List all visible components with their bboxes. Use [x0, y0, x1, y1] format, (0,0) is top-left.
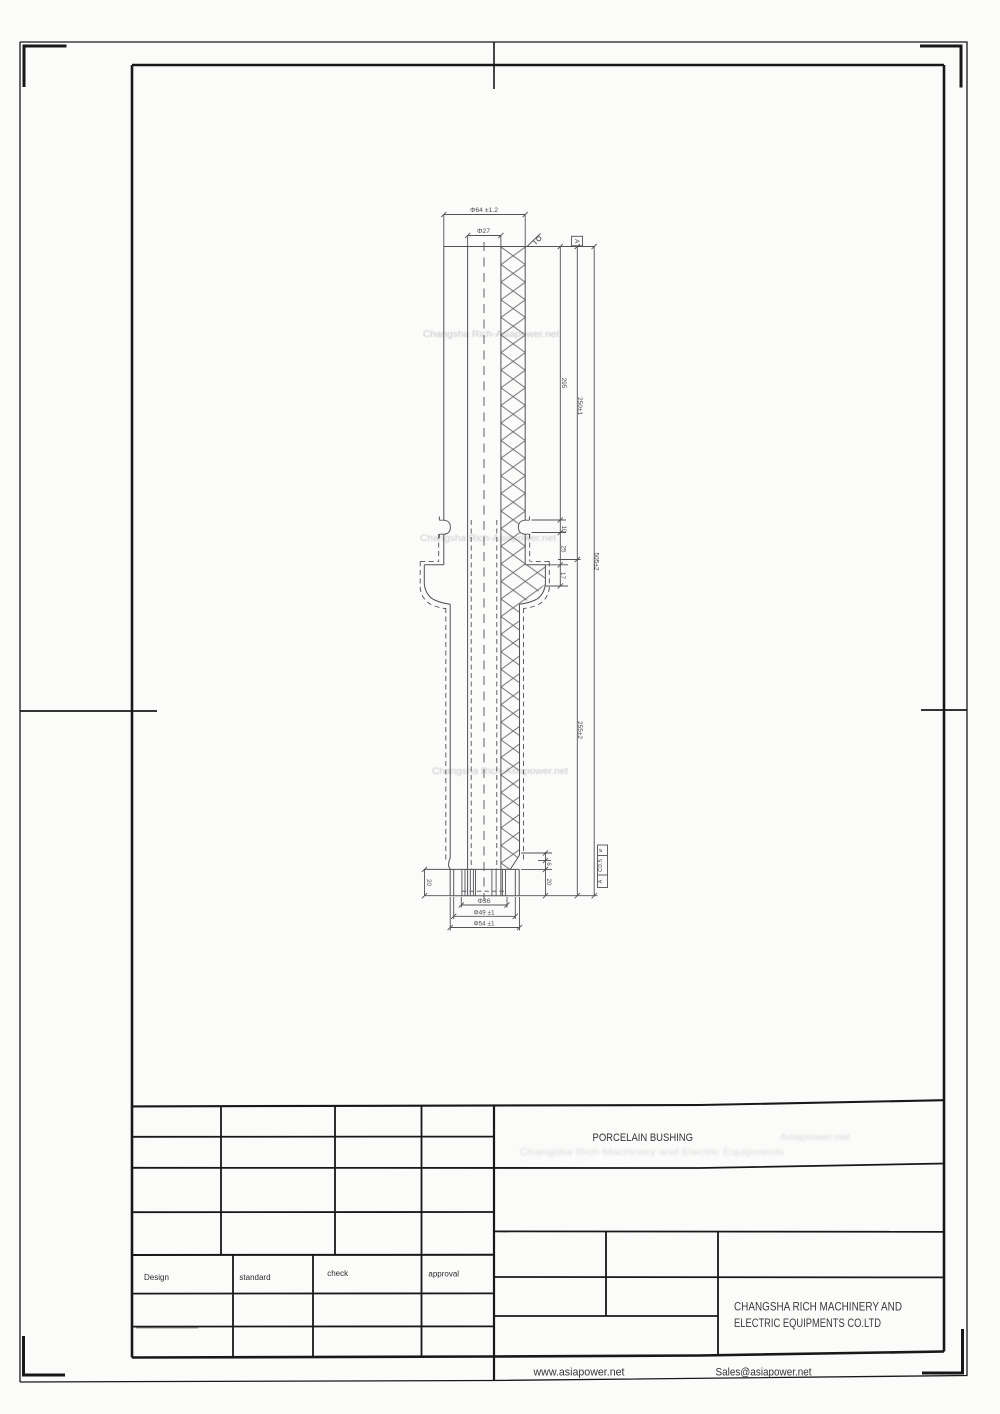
- svg-text:⌀: ⌀: [598, 848, 604, 852]
- svg-text:20: 20: [545, 878, 552, 886]
- svg-text:PORCELAIN BUSHING: PORCELAIN BUSHING: [593, 1132, 694, 1144]
- svg-text:Φ27: Φ27: [477, 228, 490, 235]
- svg-text:10: 10: [560, 526, 567, 533]
- svg-text:Changsha Rich Machinery and El: Changsha Rich Machinery and Electric Equ…: [520, 1147, 786, 1157]
- svg-text:approval: approval: [428, 1270, 459, 1279]
- svg-text:Φ54 ±1: Φ54 ±1: [474, 921, 495, 928]
- svg-text:255±2: 255±2: [576, 721, 583, 739]
- svg-text:Φ49 ±1: Φ49 ±1: [474, 909, 495, 916]
- svg-text:A: A: [598, 879, 604, 883]
- svg-text:A: A: [573, 239, 580, 244]
- svg-text:Φ64 ±1.2: Φ64 ±1.2: [470, 207, 498, 214]
- svg-text:Changsha Rich-Asiapower.net: Changsha Rich-Asiapower.net: [432, 766, 568, 777]
- svg-text:20: 20: [425, 879, 432, 887]
- svg-text:6: 6: [545, 862, 552, 866]
- svg-text:250±1: 250±1: [576, 397, 583, 415]
- svg-text:Φ36: Φ36: [478, 898, 491, 905]
- svg-text:505±2: 505±2: [593, 552, 600, 570]
- svg-text:check: check: [327, 1269, 349, 1278]
- svg-text:Asiapower.net: Asiapower.net: [780, 1132, 851, 1142]
- svg-text:295: 295: [560, 378, 567, 389]
- svg-text:CHANGSHA RICH MACHINERY AND: CHANGSHA RICH MACHINERY AND: [734, 1300, 902, 1314]
- svg-text:17: 17: [559, 572, 566, 579]
- svg-text:Design: Design: [144, 1273, 169, 1282]
- svg-text:25: 25: [560, 546, 567, 553]
- svg-text:C0.5: C0.5: [598, 859, 604, 872]
- svg-text:Sales@asiapower.net: Sales@asiapower.net: [716, 1367, 812, 1379]
- svg-text:www.asiapower.net: www.asiapower.net: [533, 1367, 625, 1379]
- svg-text:ELECTRIC EQUIPMENTS CO.LTD: ELECTRIC EQUIPMENTS CO.LTD: [734, 1316, 881, 1330]
- svg-text:standard: standard: [239, 1273, 270, 1282]
